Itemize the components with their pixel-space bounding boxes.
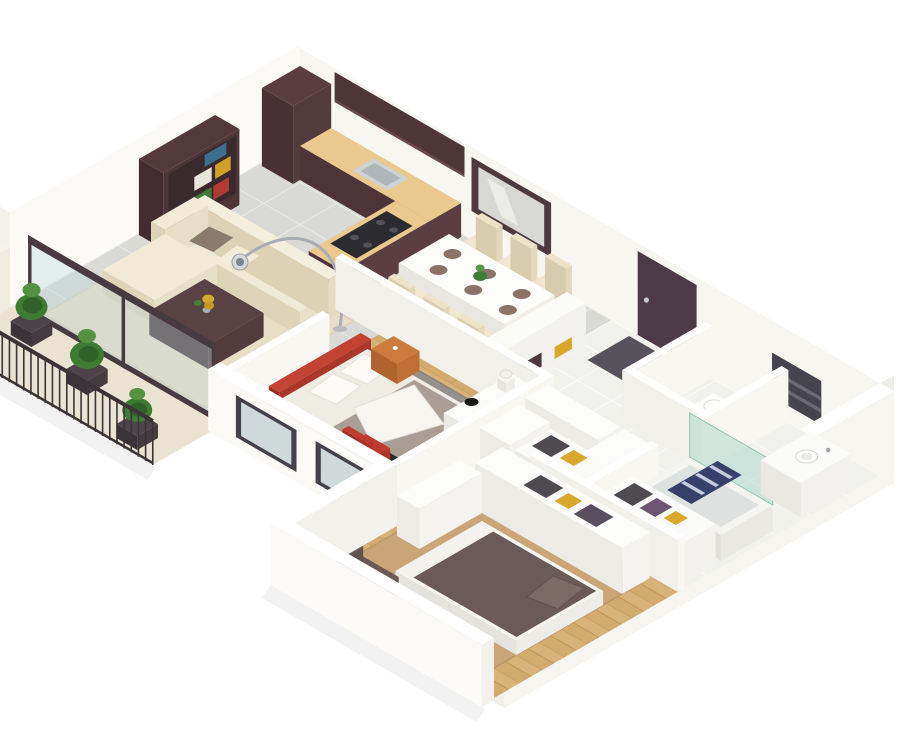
burner: [389, 227, 398, 232]
placemat: [443, 249, 461, 259]
placemat: [464, 285, 482, 295]
lamp-base: [333, 326, 347, 332]
flower-leaves: [194, 300, 202, 306]
alarm-clock: [393, 346, 398, 350]
plant-bush-dark: [22, 298, 42, 314]
placemat: [499, 305, 517, 315]
plant-bush-light: [78, 329, 96, 343]
placemat: [513, 289, 531, 299]
plant-bush-dark: [79, 346, 99, 362]
sunflowers: [204, 302, 214, 310]
isometric-floor-plan-render: [0, 0, 910, 736]
centerpiece-plant: [473, 271, 487, 281]
centerpiece-plant: [476, 265, 485, 272]
burner: [363, 242, 372, 247]
sink-faucet: [826, 448, 830, 452]
door-handle: [644, 297, 649, 302]
lamp-shade-inner: [236, 258, 244, 266]
balcony-slider-stile: [122, 289, 126, 369]
burner: [350, 235, 359, 240]
placemat: [430, 265, 448, 275]
burner: [376, 220, 385, 225]
decor-black-bowl: [464, 398, 478, 406]
sink-basin-inner: [801, 453, 813, 460]
plant-bush-light: [23, 283, 41, 297]
wall-bedroom2-north-east: [678, 536, 685, 592]
dresser-lamp-shade: [500, 370, 512, 378]
floor-plan-page: [0, 0, 910, 736]
wall-bedroom2-south-east: [482, 638, 494, 707]
plant-bush-light: [129, 388, 145, 400]
